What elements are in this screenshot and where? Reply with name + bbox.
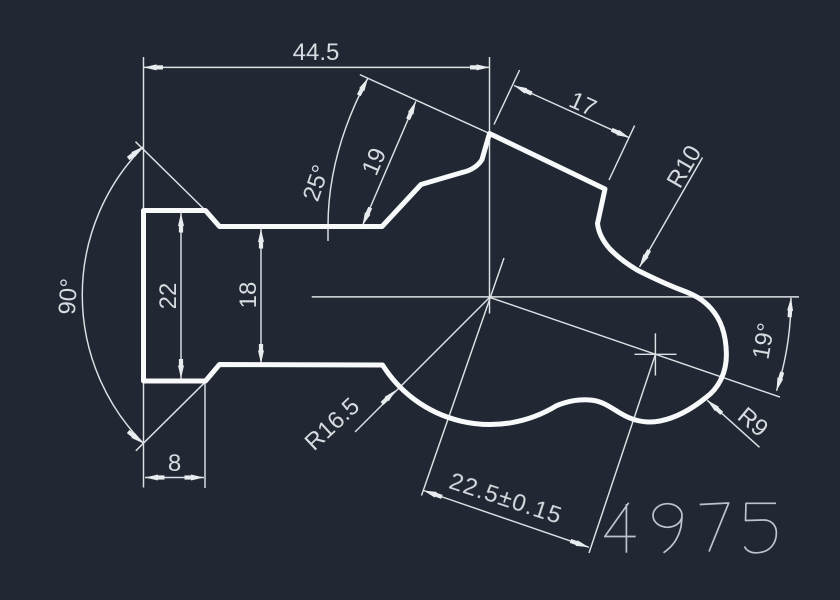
svg-text:22: 22 [155, 283, 182, 310]
svg-text:8: 8 [168, 450, 181, 477]
svg-text:44.5: 44.5 [293, 39, 340, 66]
svg-text:90°: 90° [54, 277, 83, 315]
svg-text:18: 18 [235, 282, 262, 309]
